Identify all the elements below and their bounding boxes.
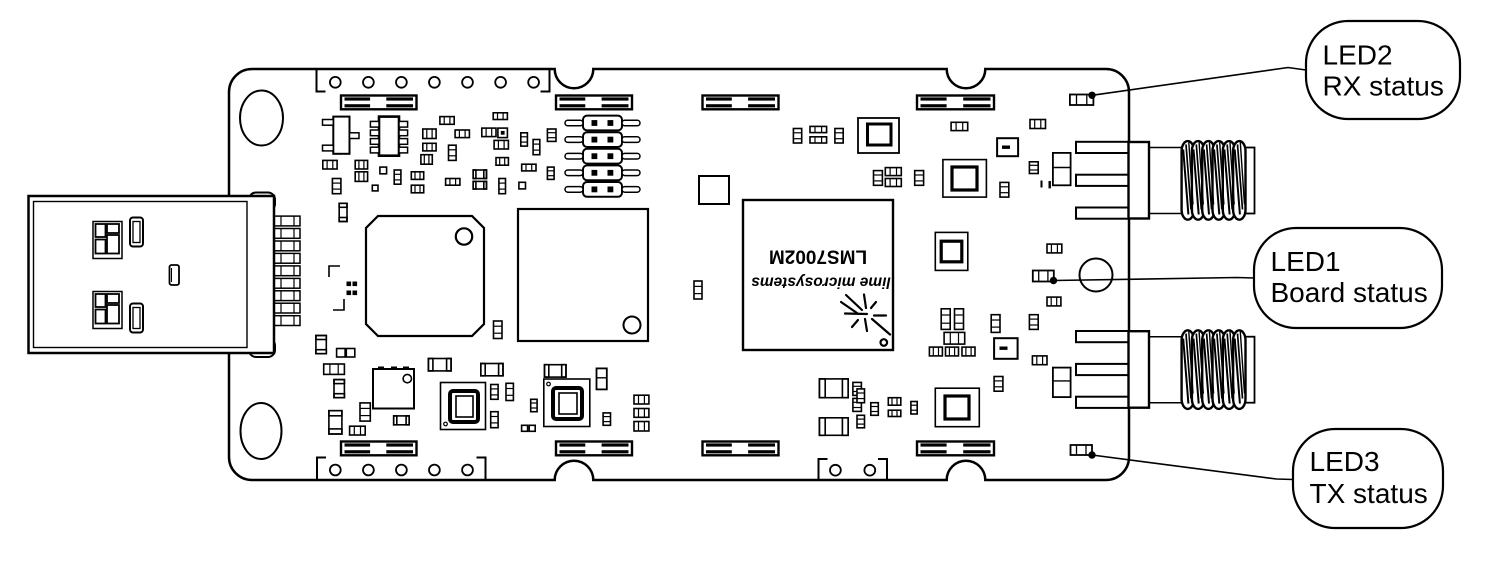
svg-text:lime microsystems: lime microsystems [751,274,891,291]
svg-text:LED3: LED3 [1310,446,1380,477]
svg-text:LMS7002M: LMS7002M [769,246,867,267]
svg-text:LED1: LED1 [1271,246,1341,277]
svg-text:TX status: TX status [1310,478,1428,509]
svg-text:RX status: RX status [1323,70,1444,101]
svg-text:Board status: Board status [1271,277,1428,308]
svg-text:LED2: LED2 [1323,39,1393,70]
